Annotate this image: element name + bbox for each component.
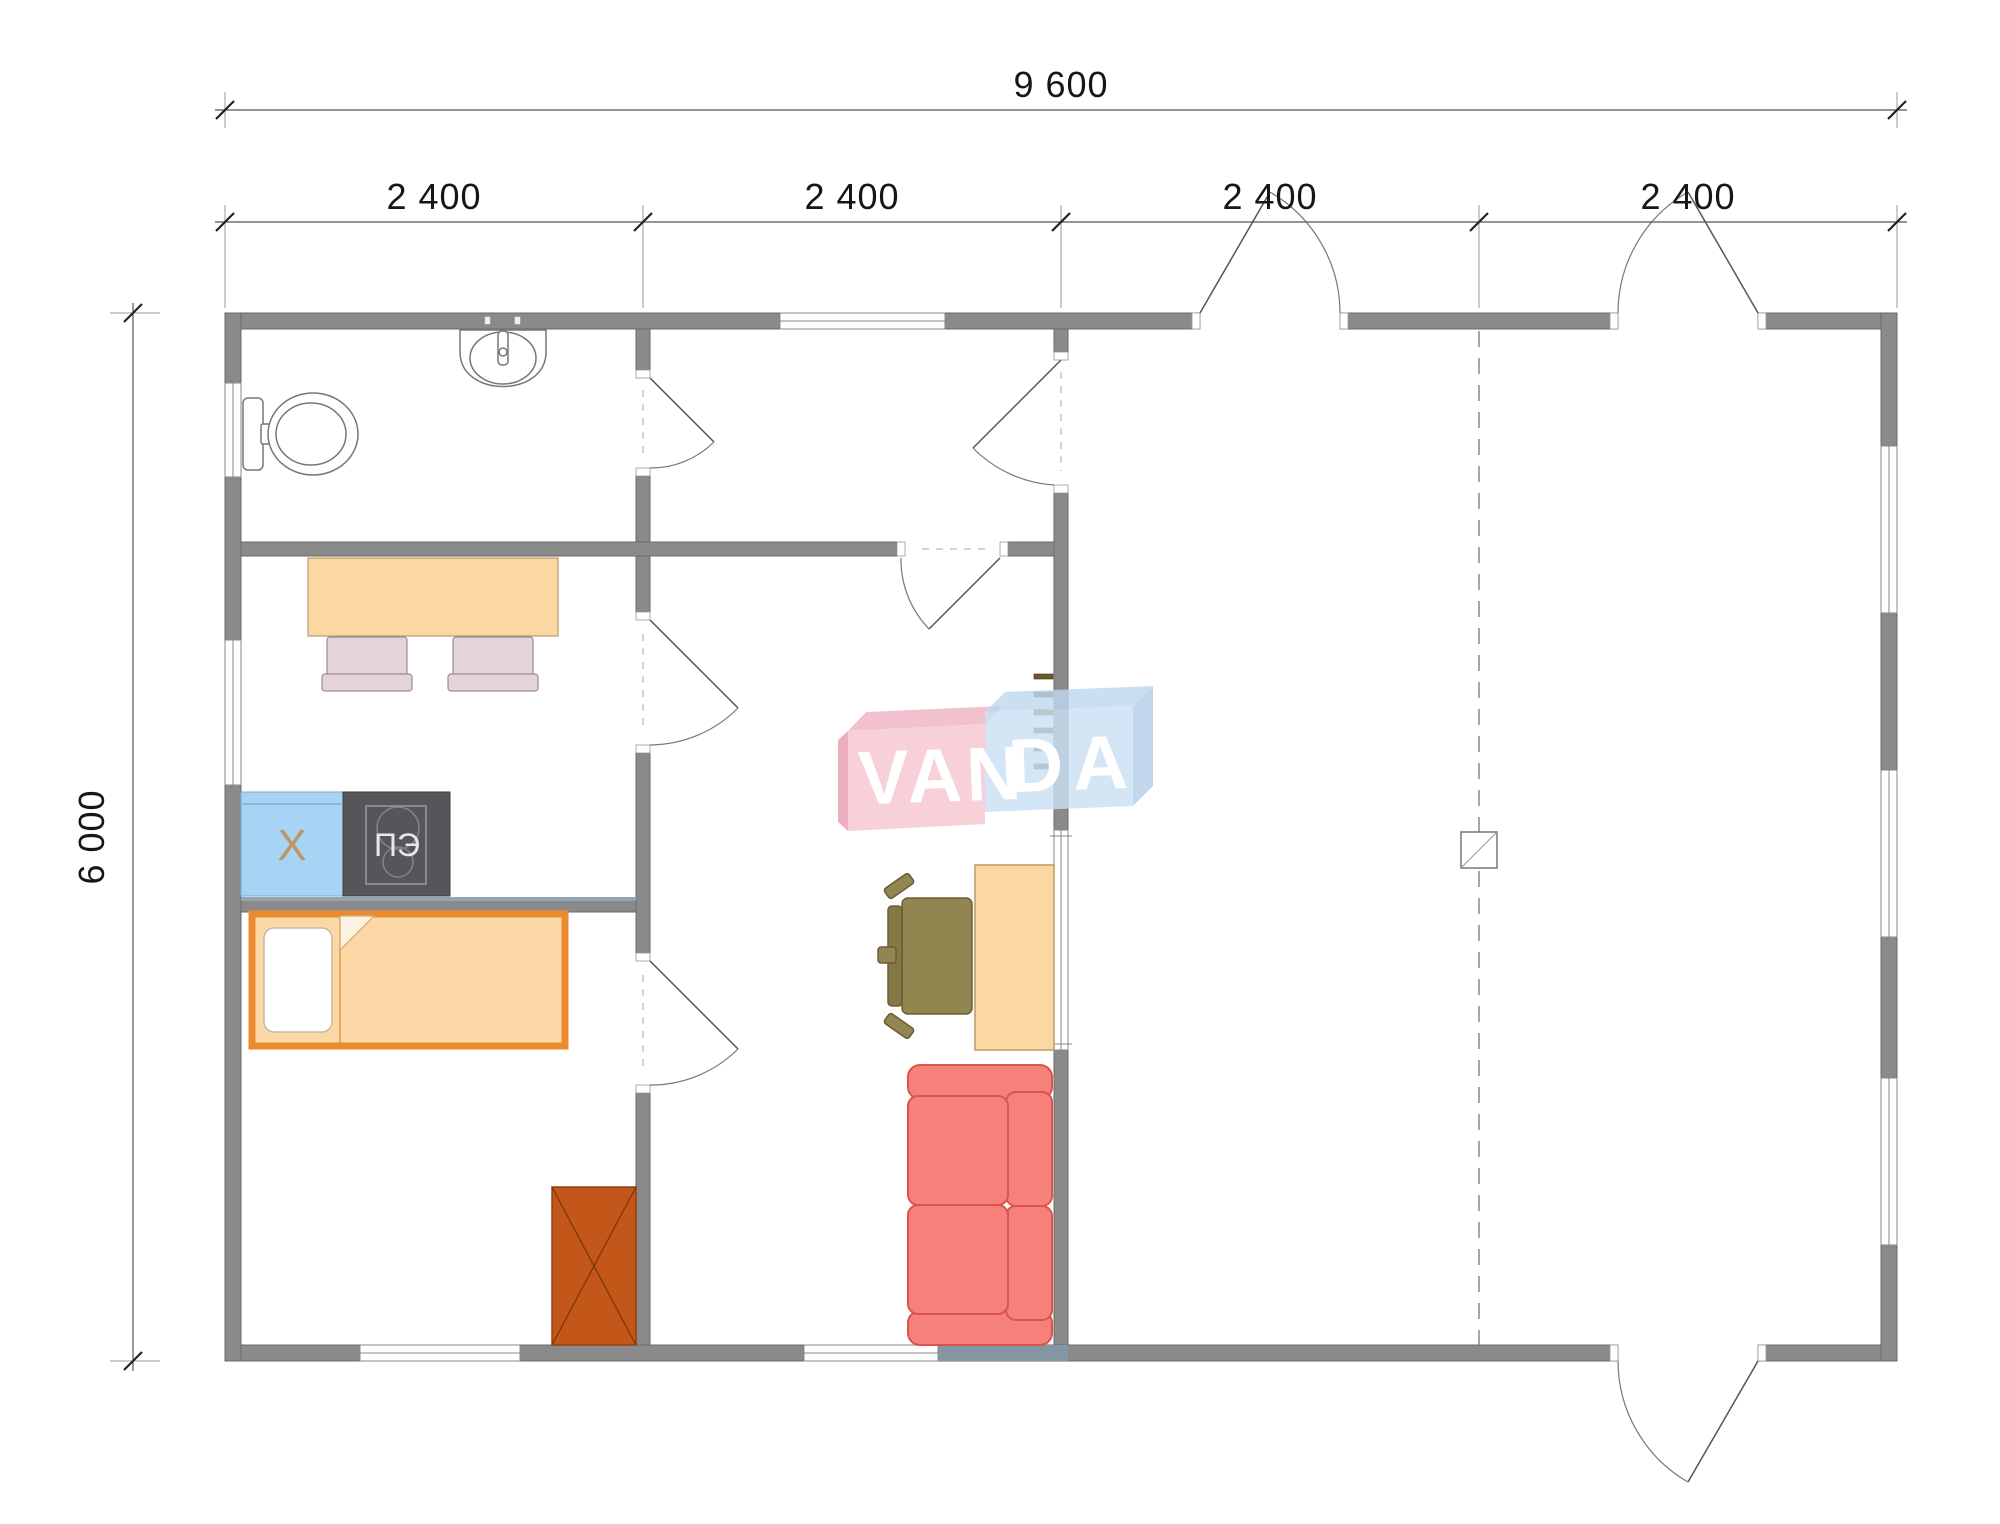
door-jambs [636,313,1766,1361]
desk [975,865,1054,1050]
toilet-seat [276,403,346,465]
window-kitchen-left [225,640,241,785]
window-bedroom-bottom [360,1345,520,1361]
sofa-seat-1 [908,1096,1008,1205]
vanda-watermark: VAN DA [838,686,1153,831]
fridge-label: X [277,821,306,870]
dim-module-4: 2 400 [1640,176,1735,217]
wall-int1-c [636,753,650,953]
chair-2 [448,637,538,691]
door-hall-bigroom [973,360,1061,485]
wall-top-1 [225,313,780,329]
toilet-tank [243,398,263,470]
stove: ПЭ [343,792,450,896]
door-bathroom [650,378,714,468]
office-chair [878,872,972,1039]
wall-top-3 [1340,313,1618,329]
chair-1 [322,637,412,691]
wall-bottom-1 [225,1345,360,1361]
fridge: X [241,792,343,896]
bedroom [252,914,636,1345]
wall-left-2 [225,477,241,640]
dining-table [308,558,558,636]
dim-module-1: 2 400 [386,176,481,217]
sofa-back-2 [1006,1206,1052,1320]
sofa-back-1 [1006,1092,1052,1206]
window-bathroom-left [225,383,241,477]
dim-module-3: 2 400 [1222,176,1317,217]
sofa-seat-2 [908,1205,1008,1314]
wall-int1-a [636,329,650,370]
column-marker [1461,832,1497,868]
wall-int1-d [636,1093,650,1345]
wall-h1-stub [1008,542,1054,556]
window-hall-top [780,313,945,329]
wall-left-1 [225,313,241,383]
sofa [908,1065,1052,1345]
logo-text-van: VAN [857,731,1027,822]
floor-plan-page: X ПЭ [0,0,2000,1524]
pillow [264,928,332,1032]
wall-int2-a [1054,329,1068,352]
logo-text-da: DA [1007,720,1140,809]
door-bedroom [650,961,738,1085]
dim-overall-depth: 6 000 [71,789,112,884]
dim-overall-width: 9 600 [1013,64,1108,105]
wall-top-2 [945,313,1200,329]
wall-int2-c [1054,1050,1068,1345]
doors [643,192,1758,1482]
wall-right-4 [1881,1245,1897,1361]
big-room [1461,331,1497,1345]
door-exterior-bottom [1618,1361,1758,1482]
window-right-1 [1881,446,1897,613]
wall-right-1 [1881,313,1897,446]
window-middleroom-bottom [804,1345,938,1361]
door-hall-middleroom [901,558,1000,629]
window-right-2 [1881,770,1897,937]
bathroom [243,316,546,475]
wall-bottom-4 [1758,1345,1897,1361]
wall-top-4 [1758,313,1897,329]
wall-tint-kitchen [241,897,636,901]
wall-bottom-2 [520,1345,804,1361]
kitchen: X ПЭ [241,558,558,896]
sink-drain [499,348,507,356]
sink-tap-left [484,316,491,325]
stove-label: ПЭ [374,827,420,863]
wall-right-3 [1881,937,1897,1078]
sink-tap-right [514,316,521,325]
dim-module-2: 2 400 [804,176,899,217]
wood-stove-cabinet [552,1187,636,1345]
door-kitchen [650,620,738,745]
toilet [243,393,358,475]
wall-h1-a [241,542,897,556]
window-right-3 [1881,1078,1897,1245]
floor-plan-drawing: X ПЭ [0,0,2000,1524]
wall-left-3 [225,785,241,1361]
wall-right-2 [1881,613,1897,770]
